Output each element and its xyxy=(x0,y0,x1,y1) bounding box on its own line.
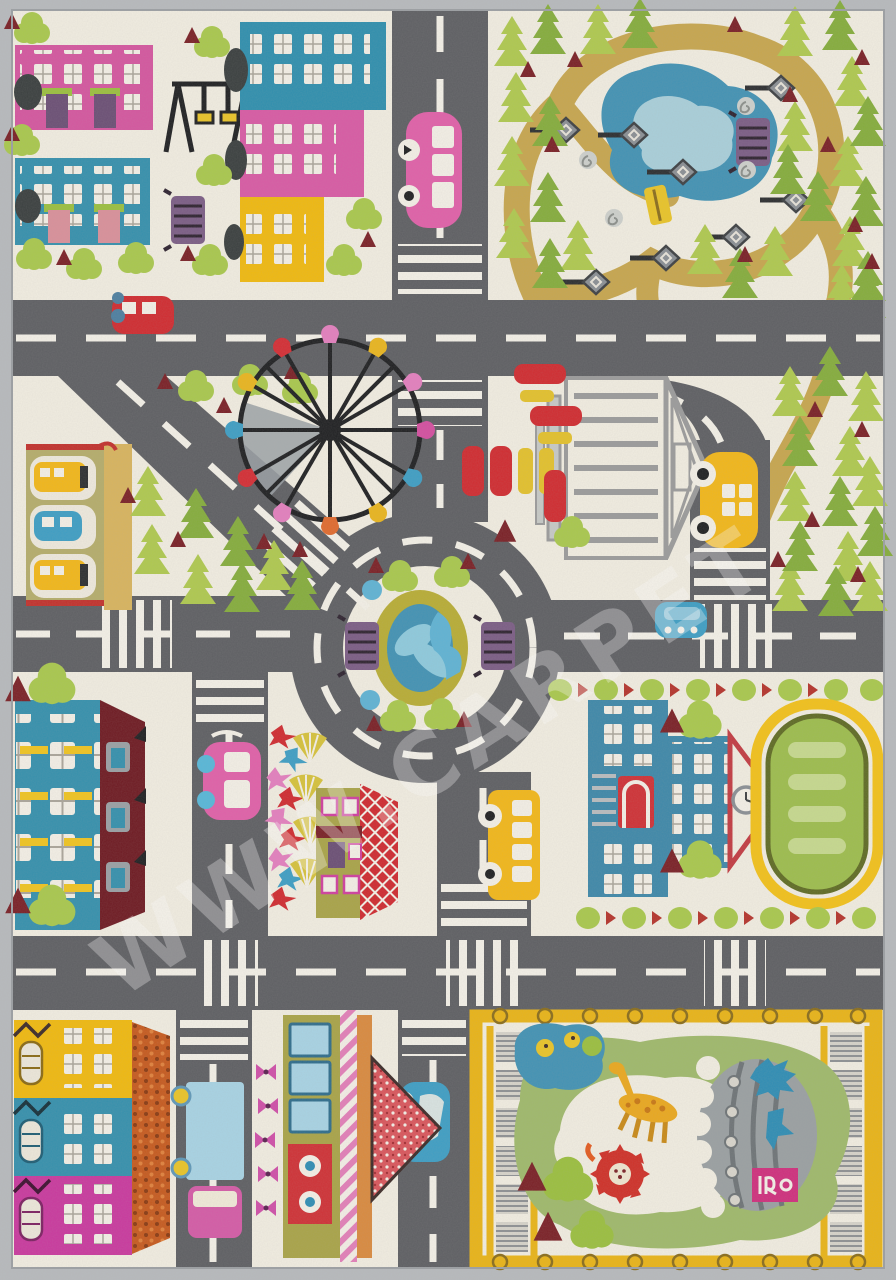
rug-illustration: WWW.CARPET xyxy=(0,0,896,1280)
carpet-texture-overlay xyxy=(0,0,896,1280)
play-rug-photo: WWW.CARPET xyxy=(0,0,896,1280)
